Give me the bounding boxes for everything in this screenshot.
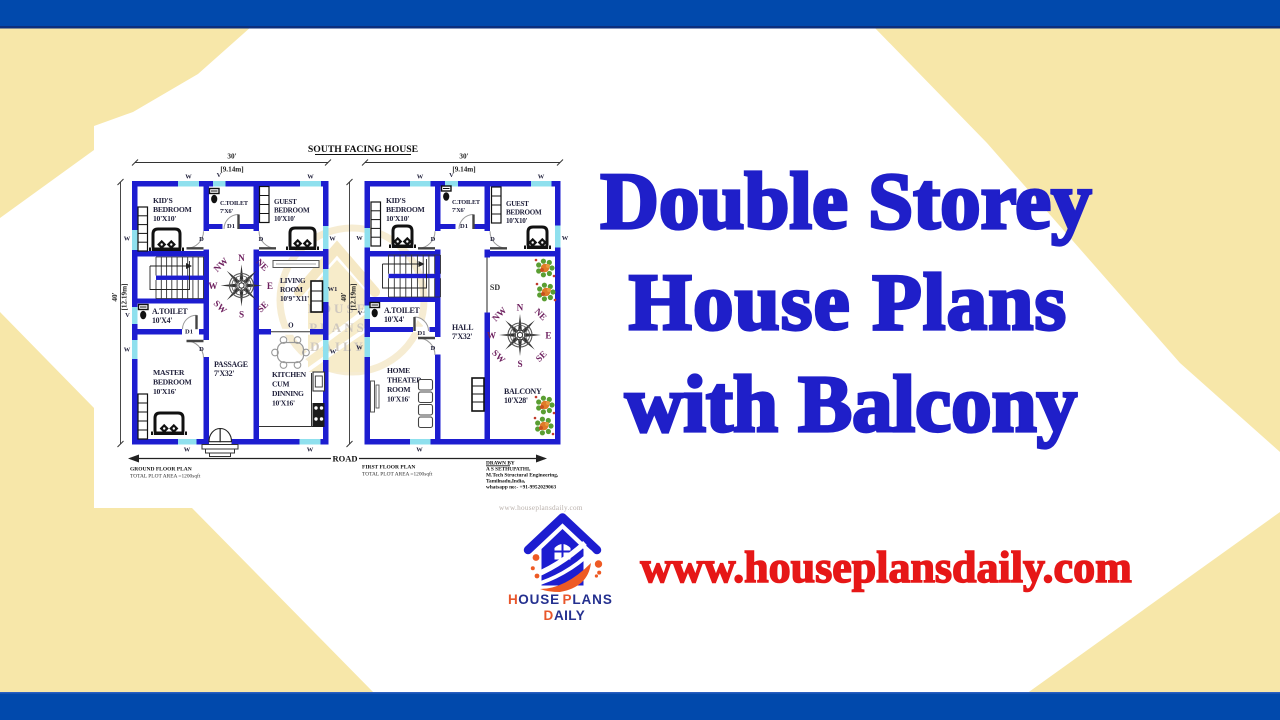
svg-text:W: W bbox=[356, 235, 363, 242]
svg-text:W: W bbox=[208, 281, 218, 291]
svg-text:SOUTH FACING HOUSE: SOUTH FACING HOUSE bbox=[308, 144, 418, 155]
svg-text:7'X6': 7'X6' bbox=[220, 208, 233, 215]
svg-text:TOTAL PLOT AREA =1200sqft: TOTAL PLOT AREA =1200sqft bbox=[362, 471, 433, 478]
svg-text:BEDROOM: BEDROOM bbox=[274, 207, 310, 215]
svg-text:D: D bbox=[199, 236, 204, 243]
svg-text:10'X16': 10'X16' bbox=[272, 399, 295, 408]
svg-text:HOME: HOME bbox=[387, 366, 410, 375]
svg-text:W: W bbox=[184, 447, 191, 454]
svg-text:S: S bbox=[517, 359, 522, 369]
svg-text:[9.14m]: [9.14m] bbox=[452, 166, 475, 174]
svg-text:ROOM: ROOM bbox=[387, 385, 410, 394]
svg-text:D: D bbox=[490, 236, 495, 243]
svg-text:40': 40' bbox=[111, 292, 119, 301]
svg-text:GUEST: GUEST bbox=[506, 200, 529, 208]
svg-text:10'X10': 10'X10' bbox=[153, 214, 176, 223]
svg-text:whatsapp no:- +91-9952029063: whatsapp no:- +91-9952029063 bbox=[486, 485, 556, 491]
svg-text:10'X4': 10'X4' bbox=[152, 316, 172, 325]
svg-text:MASTER: MASTER bbox=[153, 368, 185, 377]
svg-text:D: D bbox=[199, 346, 204, 353]
svg-text:S: S bbox=[239, 309, 244, 319]
svg-text:P: P bbox=[563, 592, 572, 607]
svg-text:10'X10': 10'X10' bbox=[386, 214, 409, 223]
svg-text:D1: D1 bbox=[460, 223, 468, 230]
svg-text:W: W bbox=[185, 174, 192, 181]
svg-text:10'X16': 10'X16' bbox=[387, 395, 410, 404]
svg-text:D1: D1 bbox=[185, 329, 193, 336]
svg-text:SD: SD bbox=[490, 283, 500, 292]
svg-text:W: W bbox=[330, 349, 337, 356]
svg-text:W1: W1 bbox=[328, 286, 338, 293]
svg-text:O: O bbox=[288, 322, 294, 330]
svg-text:D1: D1 bbox=[227, 223, 235, 230]
svg-text:[12.19m]: [12.19m] bbox=[121, 284, 129, 311]
svg-text:D: D bbox=[431, 345, 436, 352]
svg-text:7'X32': 7'X32' bbox=[214, 369, 234, 378]
svg-text:E: E bbox=[267, 281, 273, 291]
svg-text:TOTAL PLOT AREA =1200sqft: TOTAL PLOT AREA =1200sqft bbox=[130, 473, 201, 480]
svg-text:ROOM: ROOM bbox=[280, 285, 303, 294]
svg-text:10'X10': 10'X10' bbox=[506, 217, 527, 225]
svg-text:A.TOILET: A.TOILET bbox=[384, 306, 420, 315]
svg-text:www.houseplansdaily.com: www.houseplansdaily.com bbox=[499, 504, 583, 512]
svg-text:40': 40' bbox=[340, 292, 348, 301]
svg-text:W: W bbox=[538, 174, 545, 181]
svg-text:N: N bbox=[517, 302, 524, 312]
svg-text:FIRST FLOOR PLAN: FIRST FLOOR PLAN bbox=[362, 465, 415, 471]
svg-text:www.houseplansdaily.com: www.houseplansdaily.com bbox=[640, 543, 1131, 592]
svg-text:Double Storey: Double Storey bbox=[600, 156, 1091, 246]
svg-text:10'X4': 10'X4' bbox=[384, 315, 404, 324]
svg-text:W: W bbox=[562, 235, 569, 242]
svg-text:THEATER: THEATER bbox=[387, 376, 422, 385]
svg-text:30': 30' bbox=[459, 153, 468, 161]
svg-text:W: W bbox=[416, 447, 423, 454]
svg-text:D: D bbox=[431, 236, 436, 243]
svg-text:LIVING: LIVING bbox=[280, 276, 306, 285]
svg-text:House Plans: House Plans bbox=[629, 257, 1068, 347]
svg-text:OUSE: OUSE bbox=[518, 592, 560, 607]
svg-text:KID'S: KID'S bbox=[153, 196, 172, 205]
svg-text:10'X10': 10'X10' bbox=[274, 215, 295, 223]
svg-text:10'X16': 10'X16' bbox=[153, 387, 176, 396]
svg-text:KITCHEN: KITCHEN bbox=[272, 370, 307, 379]
svg-text:DINNING: DINNING bbox=[272, 389, 304, 398]
svg-text:ROAD: ROAD bbox=[332, 454, 357, 464]
svg-text:A.TOILET: A.TOILET bbox=[152, 307, 188, 316]
svg-text:KID'S: KID'S bbox=[386, 196, 405, 205]
svg-text:W: W bbox=[307, 174, 314, 181]
svg-text:C.TOILET: C.TOILET bbox=[220, 200, 249, 207]
svg-text:CUM: CUM bbox=[272, 380, 289, 389]
svg-text:AILY: AILY bbox=[554, 608, 585, 623]
svg-text:W: W bbox=[487, 330, 497, 340]
svg-text:W: W bbox=[356, 345, 363, 352]
svg-text:10'9"X11': 10'9"X11' bbox=[280, 294, 309, 303]
svg-text:[12.19m]: [12.19m] bbox=[350, 284, 358, 311]
svg-text:W: W bbox=[417, 174, 424, 181]
svg-text:[9.14m]: [9.14m] bbox=[220, 166, 243, 174]
svg-text:C.TOILET: C.TOILET bbox=[452, 199, 481, 206]
svg-text:BEDROOM: BEDROOM bbox=[153, 205, 193, 214]
svg-text:W: W bbox=[329, 236, 336, 243]
svg-text:with Balcony: with Balcony bbox=[625, 359, 1077, 449]
svg-text:H: H bbox=[508, 592, 518, 607]
svg-text:E: E bbox=[545, 330, 551, 340]
svg-text:7'X32': 7'X32' bbox=[452, 332, 472, 341]
svg-text:W: W bbox=[307, 447, 314, 454]
svg-text:HALL: HALL bbox=[452, 323, 473, 332]
svg-text:D1: D1 bbox=[418, 330, 426, 337]
svg-text:GUEST: GUEST bbox=[274, 198, 297, 206]
svg-text:BALCONY: BALCONY bbox=[504, 387, 542, 396]
svg-text:BEDROOM: BEDROOM bbox=[153, 378, 193, 387]
svg-text:D: D bbox=[259, 236, 264, 243]
svg-text:BEDROOM: BEDROOM bbox=[386, 205, 426, 214]
svg-text:LANS: LANS bbox=[572, 592, 612, 607]
svg-text:W: W bbox=[124, 236, 131, 243]
svg-text:10'X28': 10'X28' bbox=[504, 396, 528, 405]
svg-text:PASSAGE: PASSAGE bbox=[214, 360, 248, 369]
svg-text:30': 30' bbox=[227, 153, 236, 161]
svg-text:W: W bbox=[124, 347, 131, 354]
svg-text:D: D bbox=[544, 608, 554, 623]
svg-text:N: N bbox=[238, 253, 245, 263]
svg-text:V: V bbox=[358, 310, 363, 317]
svg-text:GROUND FLOOR PLAN: GROUND FLOOR PLAN bbox=[130, 467, 192, 473]
svg-text:BEDROOM: BEDROOM bbox=[506, 209, 542, 217]
svg-text:7'X6': 7'X6' bbox=[452, 207, 465, 214]
svg-text:V: V bbox=[125, 312, 130, 319]
